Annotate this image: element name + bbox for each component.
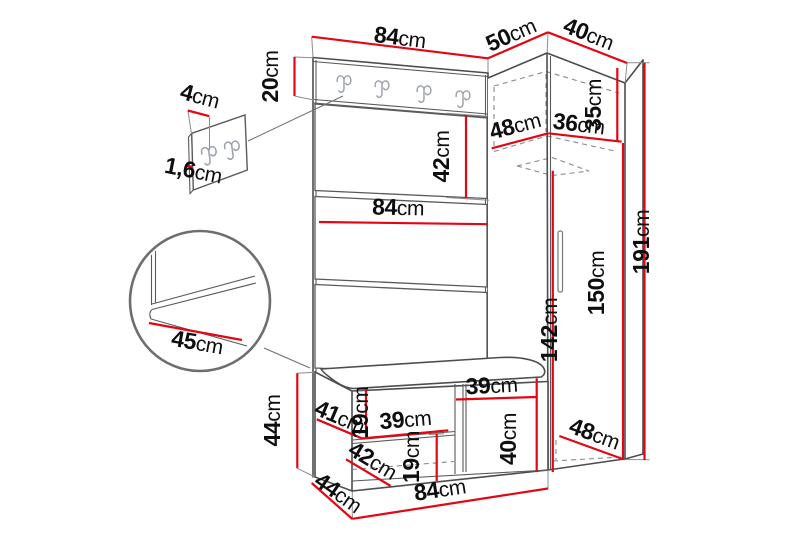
dim-label-panel-width-top: 84cm bbox=[373, 21, 428, 53]
wardrobe-door-handle bbox=[558, 231, 563, 292]
dim-label-wardrobe-depth-top: 50cm bbox=[482, 12, 540, 57]
upholstered-panel bbox=[315, 104, 487, 199]
dim-label-interior-height: 142cm bbox=[536, 298, 562, 362]
dim-label-bench-door-height: 40cm bbox=[495, 413, 521, 465]
dim-label-bench-opening-height: 19cm bbox=[347, 387, 373, 439]
dim-label-panel-cushion-height: 42cm bbox=[428, 131, 454, 183]
furniture-dimension-diagram: 45cm 4cm 1,6cm bbox=[0, 0, 800, 533]
dim-label-total-height: 191cm bbox=[628, 210, 654, 274]
hallway-set-technical-drawing: 45cm 4cm 1,6cm bbox=[0, 0, 800, 533]
dim-label-panel-width-mid: 84cm bbox=[372, 194, 424, 221]
dim-label-bench-door-width: 39cm bbox=[465, 371, 518, 400]
dim-label-bench-lower-height: 19cm bbox=[398, 431, 424, 483]
seat-detail-circle: 45cm bbox=[130, 230, 310, 371]
dim-label-rail-height: 20cm bbox=[257, 51, 283, 103]
dim-label-top-compartment-height: 35cm bbox=[580, 79, 606, 131]
dim-label-plate-width: 4cm bbox=[178, 78, 223, 113]
dim-label-door-height: 150cm bbox=[583, 251, 609, 315]
dim-label-bench-height: 44cm bbox=[259, 395, 285, 447]
dim-label-bench-shelf-width: 39cm bbox=[378, 404, 432, 434]
